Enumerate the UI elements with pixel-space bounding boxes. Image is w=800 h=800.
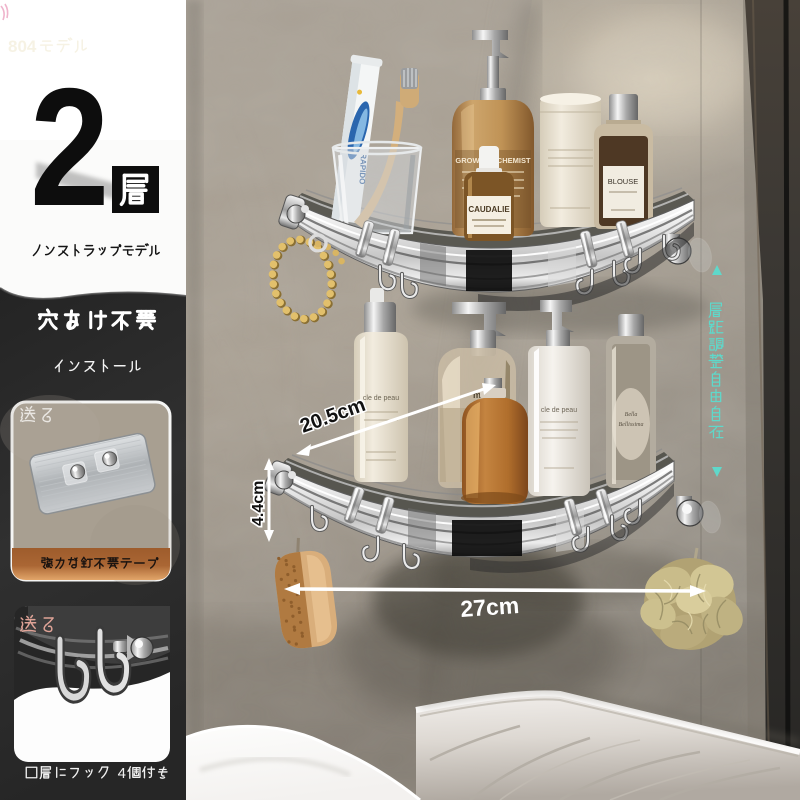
svg-text:4.4cm: 4.4cm bbox=[250, 481, 267, 526]
svg-text:cle de peau: cle de peau bbox=[541, 407, 577, 414]
svg-text:BLOUSE: BLOUSE bbox=[608, 177, 638, 186]
svg-text:2: 2 bbox=[30, 54, 109, 241]
svg-text:Bellissima: Bellissima bbox=[619, 422, 644, 428]
svg-text:Bella: Bella bbox=[625, 412, 638, 418]
svg-text:804: 804 bbox=[8, 37, 37, 56]
svg-text:CAUDALIE: CAUDALIE bbox=[468, 205, 510, 214]
svg-text:4: 4 bbox=[118, 765, 126, 782]
svg-text:27cm: 27cm bbox=[460, 592, 520, 622]
svg-text:cle de peau: cle de peau bbox=[363, 395, 399, 402]
